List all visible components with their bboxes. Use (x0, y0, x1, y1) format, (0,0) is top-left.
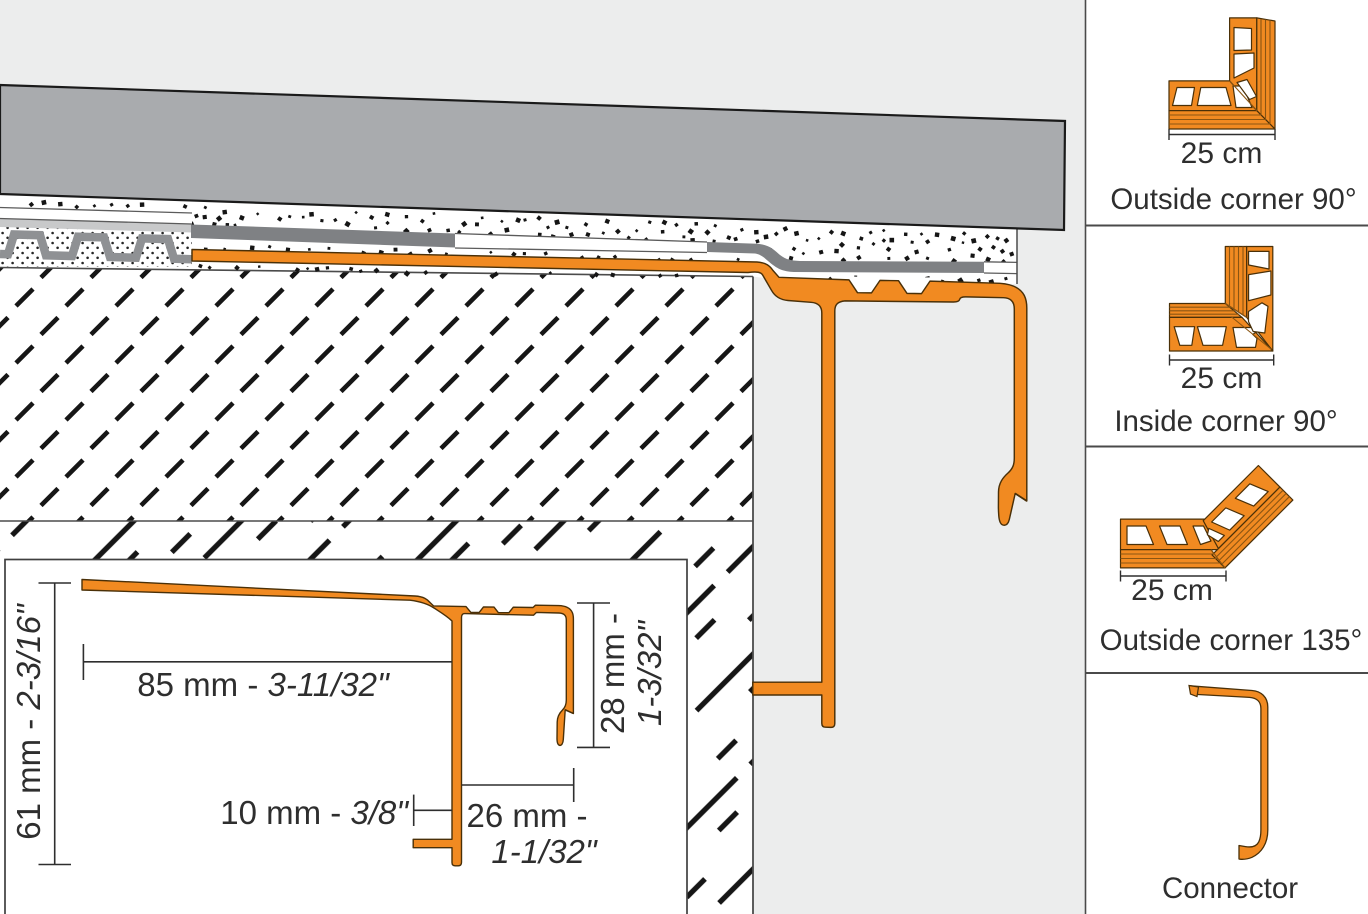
svg-text:Connector: Connector (1162, 872, 1298, 905)
svg-text:61 mm - 2-3/16": 61 mm - 2-3/16" (10, 603, 47, 840)
svg-text:1-3/32": 1-3/32" (631, 620, 668, 727)
svg-text:Inside corner 90°: Inside corner 90° (1114, 405, 1337, 438)
svg-text:26 mm -: 26 mm - (466, 797, 587, 834)
svg-text:25 cm: 25 cm (1131, 574, 1213, 607)
svg-text:10 mm - 3/8": 10 mm - 3/8" (220, 794, 409, 831)
svg-text:25 cm: 25 cm (1181, 137, 1263, 170)
svg-text:Outside corner 90°: Outside corner 90° (1110, 183, 1356, 216)
svg-text:25 cm: 25 cm (1181, 362, 1263, 395)
svg-text:1-1/32": 1-1/32" (491, 833, 598, 870)
svg-text:Outside corner 135°: Outside corner 135° (1100, 624, 1363, 657)
svg-text:28 mm -: 28 mm - (594, 613, 631, 734)
svg-text:85 mm - 3-11/32": 85 mm - 3-11/32" (137, 666, 390, 703)
